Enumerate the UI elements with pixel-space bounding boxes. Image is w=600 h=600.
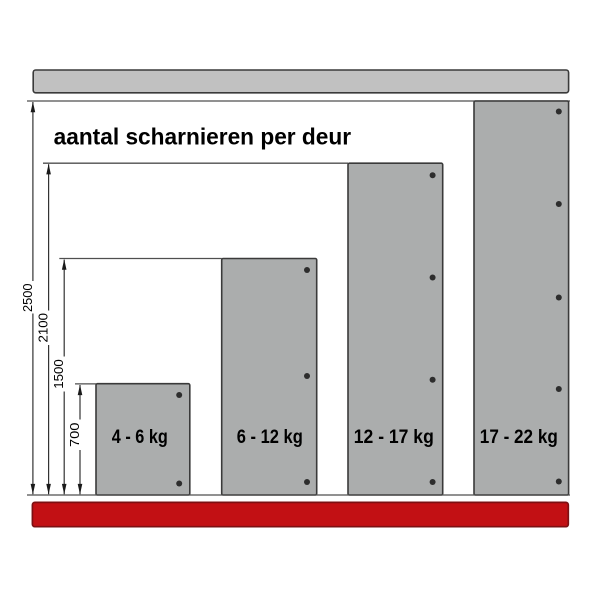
svg-text:2100: 2100 xyxy=(36,313,51,343)
svg-text:2500: 2500 xyxy=(20,283,35,312)
svg-text:700: 700 xyxy=(67,423,82,448)
svg-text:6 - 12 kg: 6 - 12 kg xyxy=(237,427,303,448)
svg-text:aantal scharnieren per deur: aantal scharnieren per deur xyxy=(54,124,352,150)
svg-text:12 - 17 kg: 12 - 17 kg xyxy=(354,427,434,448)
svg-text:17 - 22 kg: 17 - 22 kg xyxy=(480,427,558,448)
svg-text:1500: 1500 xyxy=(51,359,66,389)
svg-text:4 - 6 kg: 4 - 6 kg xyxy=(112,427,168,448)
